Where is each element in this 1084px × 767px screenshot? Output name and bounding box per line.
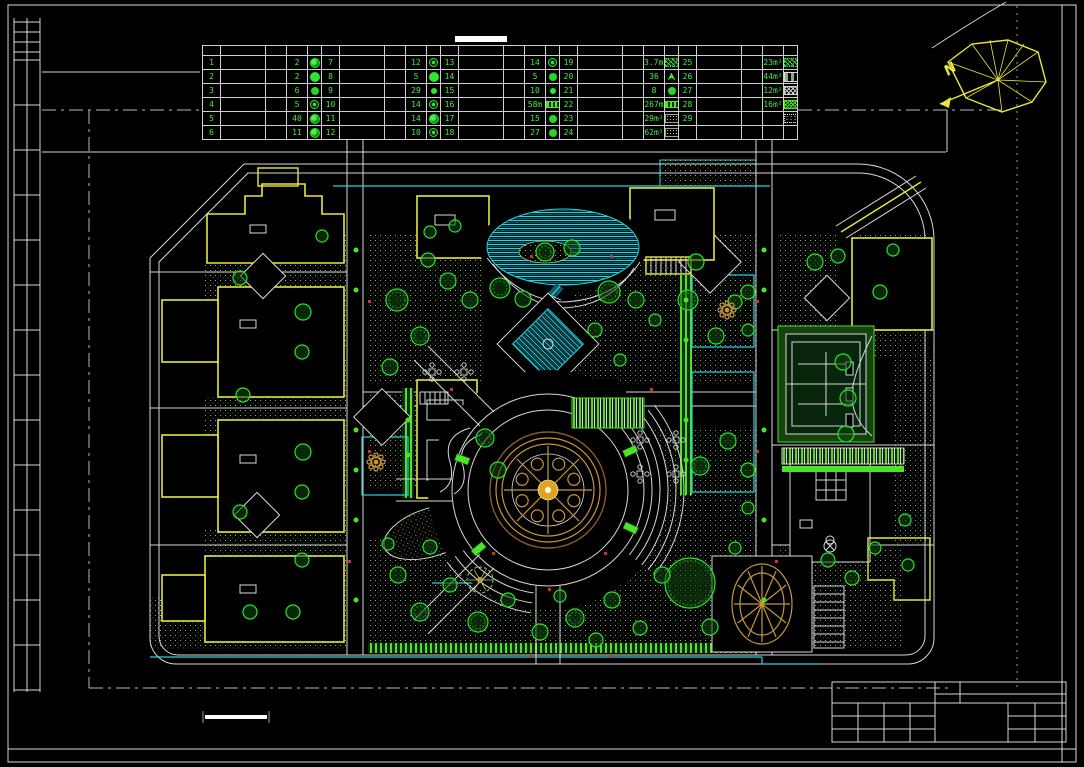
legend-header-cell [266,46,287,56]
legend-symbol-cell [308,126,322,140]
left-title-strip [14,18,40,692]
plant-symbol-icon [550,88,556,94]
legend-no-cell: 15 [441,84,459,98]
legend-symbol-cell [308,112,322,126]
plant-symbol-icon [310,58,320,68]
legend-header-cell [742,46,763,56]
pergola [572,398,644,428]
plant-symbol-icon [429,100,438,109]
plant-symbol-icon [429,72,439,82]
legend-name-cell [697,98,742,112]
legend-name-cell [697,112,742,126]
legend-spec-cell [623,70,644,84]
legend-qty-cell: 10 [525,84,546,98]
legend-symbol-cell [308,70,322,84]
legend-spec-cell [742,98,763,112]
legend-qty-cell: 8 [644,84,665,98]
legend-spec-cell [504,126,525,140]
oval-plaza-building [712,556,812,652]
legend-no-cell: 1 [203,56,221,70]
legend-no-cell: 3 [203,84,221,98]
legend-symbol-cell [427,70,441,84]
legend-no-cell: 27 [679,84,697,98]
legend-qty-cell: 2 [287,70,308,84]
legend-name-cell [340,84,385,98]
north-label: N [941,59,960,79]
legend-spec-cell [266,70,287,84]
plant-symbol-icon [431,88,437,94]
legend-header-cell [665,46,679,56]
legend-header-cell [427,46,441,56]
legend-no-cell: 7 [322,56,340,70]
legend-no-cell: 29 [679,112,697,126]
legend-no-cell: 6 [203,126,221,140]
legend-name-cell [340,98,385,112]
legend-header-cell [340,46,385,56]
legend-qty-cell: 267m [644,98,665,112]
legend-name-cell [578,70,623,84]
legend-symbol-cell [427,98,441,112]
legend-header-cell [504,46,525,56]
legend-name-cell [578,98,623,112]
legend-name-cell [578,56,623,70]
legend-qty-cell: 14 [406,112,427,126]
legend-qty-cell: 6 [287,84,308,98]
legend-header-cell [623,46,644,56]
legend-spec-cell [385,112,406,126]
legend-symbol-cell [784,84,798,98]
legend-qty-cell [763,126,784,140]
legend-symbol-cell [784,126,798,140]
plant-symbol-icon [429,128,438,137]
legend-no-cell: 4 [203,98,221,112]
legend-name-cell [459,112,504,126]
legend-qty-cell: 5 [525,70,546,84]
legend-symbol-cell [665,126,679,140]
legend-qty-cell: 5 [406,70,427,84]
legend-no-cell: 22 [560,98,578,112]
plant-symbol-icon [784,72,798,82]
legend-name-cell [221,126,266,140]
plant-symbol-icon [549,129,557,137]
plant-symbol-icon [310,114,320,124]
legend-spec-cell [266,126,287,140]
fountain-mandala [490,432,606,548]
legend-qty-cell: 16m² [763,98,784,112]
legend-qty-cell: 12m² [763,84,784,98]
legend-table: 127121314193.7m²2523m²228514520362644m²3… [202,45,798,140]
legend-name-cell [697,56,742,70]
legend-no-cell: 5 [203,112,221,126]
plant-symbol-icon [668,73,676,81]
legend-name-cell [221,112,266,126]
legend-name-cell [340,112,385,126]
legend-name-cell [578,112,623,126]
legend-qty-cell: 62m² [644,126,665,140]
legend-spec-cell [266,56,287,70]
legend-symbol-cell [546,126,560,140]
plant-symbol-icon [549,73,557,81]
legend-symbol-cell [308,56,322,70]
legend-header-cell [203,46,221,56]
plant-symbol-icon [549,115,557,123]
legend-header-cell [697,46,742,56]
legend-name-cell [340,126,385,140]
legend-spec-cell [504,98,525,112]
legend-no-cell: 19 [560,56,578,70]
scale-bar-bottom [203,711,269,723]
trellis [782,448,904,464]
legend-symbol-cell [784,70,798,84]
legend-spec-cell [504,84,525,98]
legend-spec-cell [266,112,287,126]
legend-no-cell: 9 [322,84,340,98]
legend-symbol-cell [546,98,560,112]
legend-no-cell: 20 [560,70,578,84]
plant-symbol-icon [665,58,679,67]
legend-symbol-cell [427,84,441,98]
legend-spec-cell [742,126,763,140]
legend-qty-cell: 29 [406,84,427,98]
legend-qty-cell [763,112,784,126]
legend-symbol-cell [546,56,560,70]
legend-qty-cell: 12 [406,56,427,70]
legend-spec-cell [504,56,525,70]
plant-symbol-icon [310,72,320,82]
legend-no-cell: 16 [441,98,459,112]
plant-symbol-icon [429,58,438,67]
legend-name-cell [221,98,266,112]
hedge-row [368,643,760,653]
legend-qty-cell: 23m² [763,56,784,70]
legend-name-cell [221,56,266,70]
legend-symbol-cell [665,112,679,126]
legend-spec-cell [385,98,406,112]
legend-no-cell: 12 [322,126,340,140]
legend-symbol-cell [784,98,798,112]
legend-no-cell: 10 [322,98,340,112]
legend-qty-cell: 10 [406,126,427,140]
title-block [832,682,1066,742]
legend-spec-cell [742,84,763,98]
legend-symbol-cell [665,98,679,112]
legend-header-cell [784,46,798,56]
legend-name-cell [340,70,385,84]
north-arrow-icon: N [940,40,1046,112]
plant-symbol-icon [665,101,679,108]
plant-symbol-icon [310,128,320,138]
legend-qty-cell: 5 [287,98,308,112]
plant-symbol-icon [310,100,319,109]
legend-qty-cell: 36 [644,70,665,84]
legend-no-cell: 11 [322,112,340,126]
legend-qty-cell: 58m [525,98,546,112]
legend-symbol-cell [308,98,322,112]
legend-header-cell [525,46,546,56]
legend-qty-cell: 11 [287,126,308,140]
legend-spec-cell [266,84,287,98]
legend-qty-cell: 27 [525,126,546,140]
legend-name-cell [578,84,623,98]
legend-spec-cell [623,56,644,70]
legend-qty-cell: 15 [525,112,546,126]
legend-header-cell [644,46,665,56]
legend-spec-cell [385,84,406,98]
legend-header-cell [287,46,308,56]
legend-name-cell [578,126,623,140]
legend-spec-cell [504,112,525,126]
legend-name-cell [697,84,742,98]
legend-name-cell [459,70,504,84]
legend-no-cell [679,126,697,140]
plant-symbol-icon [784,100,798,109]
plant-symbol-icon [665,114,679,123]
legend-header-cell [221,46,266,56]
legend-header-cell [679,46,697,56]
legend-header-cell [546,46,560,56]
legend-symbol-cell [546,84,560,98]
legend-no-cell: 21 [560,84,578,98]
legend-no-cell: 25 [679,56,697,70]
legend-name-cell [459,84,504,98]
legend-symbol-cell [427,126,441,140]
legend-header-cell [406,46,427,56]
legend-symbol-cell [784,56,798,70]
legend-name-cell [459,98,504,112]
plant-symbol-icon [546,101,560,108]
legend-spec-cell [742,112,763,126]
legend-qty-cell: 14 [406,98,427,112]
legend-header-cell [763,46,784,56]
legend-symbol-cell [665,56,679,70]
legend-symbol-cell [665,84,679,98]
legend-no-cell: 13 [441,56,459,70]
plant-symbol-icon [548,58,557,67]
legend-spec-cell [623,84,644,98]
legend-qty-cell: 2 [287,56,308,70]
legend-symbol-cell [308,84,322,98]
cad-site-plan: N 127121314193.7m²2523m²228514520362644m… [0,0,1084,767]
legend-symbol-cell [427,112,441,126]
legend-name-cell [221,70,266,84]
legend-name-cell [459,126,504,140]
legend-header-cell [308,46,322,56]
legend-symbol-cell [784,112,798,126]
legend-spec-cell [742,56,763,70]
legend-name-cell [697,70,742,84]
legend-table-container: 127121314193.7m²2523m²228514520362644m²3… [202,45,798,140]
legend-no-cell: 8 [322,70,340,84]
plant-symbol-icon [668,87,676,95]
legend-symbol-cell [427,56,441,70]
legend-qty-cell: 3.7m² [644,56,665,70]
legend-no-cell: 28 [679,98,697,112]
legend-qty-cell: 29m² [644,112,665,126]
plant-symbol-icon [784,114,798,123]
legend-spec-cell [385,70,406,84]
legend-header-cell [441,46,459,56]
legend-no-cell: 2 [203,70,221,84]
legend-spec-cell [623,112,644,126]
legend-qty-cell: 44m² [763,70,784,84]
scale-bar-top [455,36,507,42]
legend-name-cell [221,84,266,98]
plant-symbol-icon [784,58,798,67]
legend-spec-cell [623,126,644,140]
legend-no-cell: 14 [441,70,459,84]
legend-symbol-cell [665,70,679,84]
legend-symbol-cell [546,112,560,126]
plant-symbol-icon [311,87,319,95]
legend-no-cell: 18 [441,126,459,140]
legend-spec-cell [623,98,644,112]
legend-no-cell: 24 [560,126,578,140]
legend-no-cell: 26 [679,70,697,84]
plant-symbol-icon [665,128,679,137]
plant-symbol-icon [784,86,798,95]
legend-spec-cell [385,56,406,70]
legend-header-cell [385,46,406,56]
legend-no-cell: 23 [560,112,578,126]
legend-name-cell [340,56,385,70]
legend-spec-cell [385,126,406,140]
legend-qty-cell: 14 [525,56,546,70]
legend-name-cell [459,56,504,70]
legend-spec-cell [266,98,287,112]
legend-header-cell [322,46,340,56]
legend-spec-cell [742,70,763,84]
legend-symbol-cell [546,70,560,84]
legend-header-cell [560,46,578,56]
legend-qty-cell: 40 [287,112,308,126]
legend-header-cell [459,46,504,56]
legend-header-cell [578,46,623,56]
plant-symbol-icon [429,114,439,124]
legend-no-cell: 17 [441,112,459,126]
legend-name-cell [697,126,742,140]
legend-spec-cell [504,70,525,84]
